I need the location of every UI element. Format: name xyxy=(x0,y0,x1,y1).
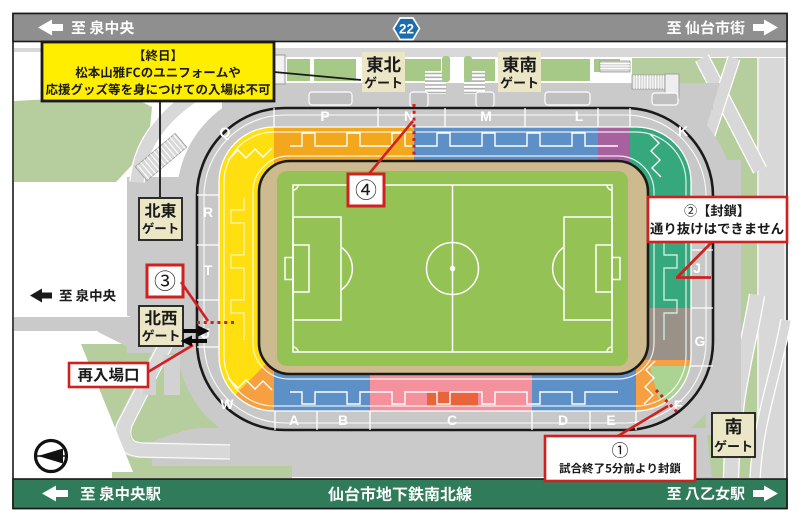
svg-text:B: B xyxy=(338,412,348,428)
svg-text:Q: Q xyxy=(220,124,231,140)
svg-text:L: L xyxy=(575,108,584,124)
svg-text:A: A xyxy=(289,412,299,428)
svg-text:J: J xyxy=(693,260,701,276)
svg-text:W: W xyxy=(220,396,234,412)
svg-text:M: M xyxy=(480,108,492,124)
svg-text:G: G xyxy=(695,333,706,349)
svg-text:R: R xyxy=(203,204,213,220)
svg-text:22: 22 xyxy=(399,22,414,37)
svg-text:D: D xyxy=(558,412,568,428)
svg-text:K: K xyxy=(678,123,688,139)
svg-text:E: E xyxy=(606,412,615,428)
svg-text:P: P xyxy=(320,108,329,124)
svg-text:C: C xyxy=(447,412,457,428)
svg-text:T: T xyxy=(204,262,213,278)
